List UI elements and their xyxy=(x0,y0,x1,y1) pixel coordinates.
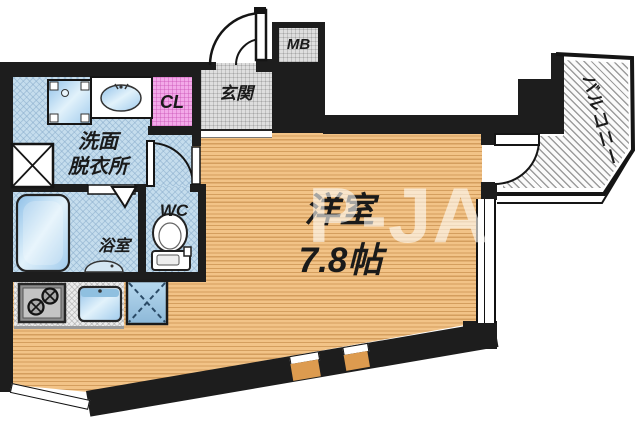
toilet-door-arc xyxy=(151,143,193,185)
vanity-faucet-dot xyxy=(119,85,122,88)
entrance-label: 玄関 xyxy=(203,85,269,104)
washroom-sliding-door xyxy=(192,147,200,184)
washroom-label-line1: 洗面 xyxy=(58,131,138,153)
washroom-label-line2: 脱衣所 xyxy=(52,156,144,178)
bath-counter-dot xyxy=(111,265,114,268)
entrance-door-arc-outer xyxy=(210,13,262,65)
entrance-door-leaf xyxy=(256,10,266,60)
kitchen-faucet-icon xyxy=(98,289,102,293)
toilet-handle-icon xyxy=(184,247,191,256)
washer-drain-icon xyxy=(62,90,69,97)
entrance-door-cap xyxy=(254,7,266,14)
bath-counter-icon xyxy=(85,261,123,272)
meter-box-label: MB xyxy=(279,37,318,54)
closet-label: CL xyxy=(152,93,192,113)
vanity-basin-icon xyxy=(101,85,141,111)
main-room-label: 洋室 xyxy=(272,192,407,231)
bathtub-inner xyxy=(23,201,63,265)
floor-plan: 玄関 MB CL 洗面 脱衣所 WC 浴室 洋室 7.8帖 バルコニー P-JA xyxy=(0,0,640,427)
washer-pan-corner xyxy=(81,114,89,122)
main-room-size-label: 7.8帖 xyxy=(268,242,413,281)
bathroom-folding-door-icon xyxy=(112,187,136,207)
bathroom-label: 浴室 xyxy=(78,238,150,256)
balcony-door-leaf xyxy=(495,134,539,145)
toilet-tank-lid xyxy=(157,255,179,265)
washer-pan-corner xyxy=(50,114,58,122)
washer-pan-corner xyxy=(50,82,58,90)
toilet-door-leaf xyxy=(147,141,154,186)
toilet-label: WC xyxy=(148,202,200,221)
washer-pan-corner xyxy=(81,82,89,90)
